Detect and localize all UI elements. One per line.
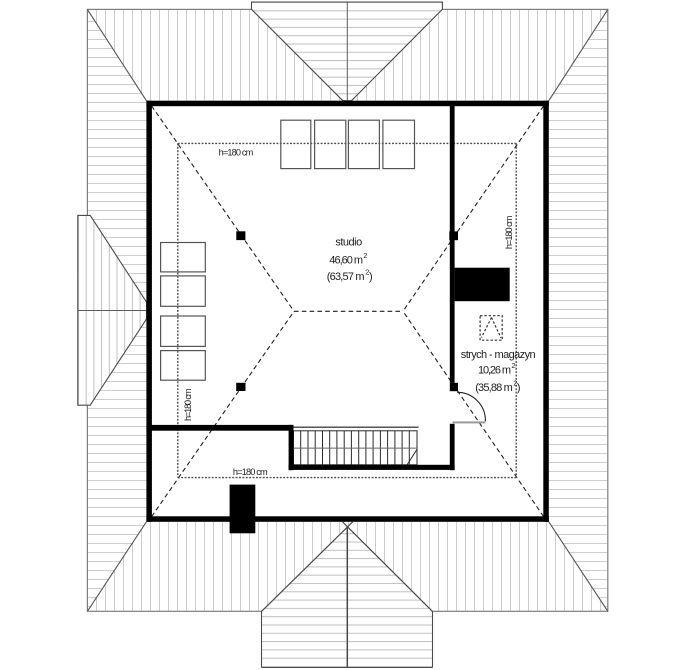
- svg-text:46,60 m: 46,60 m: [329, 255, 363, 267]
- svg-text:10,26 m: 10,26 m: [478, 365, 511, 377]
- svg-text:h=180 cm: h=180 cm: [183, 388, 193, 421]
- svg-text:2: 2: [363, 251, 367, 260]
- svg-text:strych - magazyn: strych - magazyn: [461, 349, 536, 361]
- svg-text:h=180 cm: h=180 cm: [504, 215, 514, 249]
- svg-text:): ): [517, 382, 521, 394]
- svg-text:h=180 cm: h=180 cm: [219, 147, 254, 157]
- svg-text:studio: studio: [335, 237, 362, 249]
- svg-text:(35,88 m: (35,88 m: [475, 382, 513, 394]
- svg-text:): ): [369, 271, 373, 283]
- svg-text:2: 2: [512, 361, 516, 370]
- svg-text:h=180 cm: h=180 cm: [233, 467, 268, 477]
- svg-text:(63,57 m: (63,57 m: [327, 271, 365, 283]
